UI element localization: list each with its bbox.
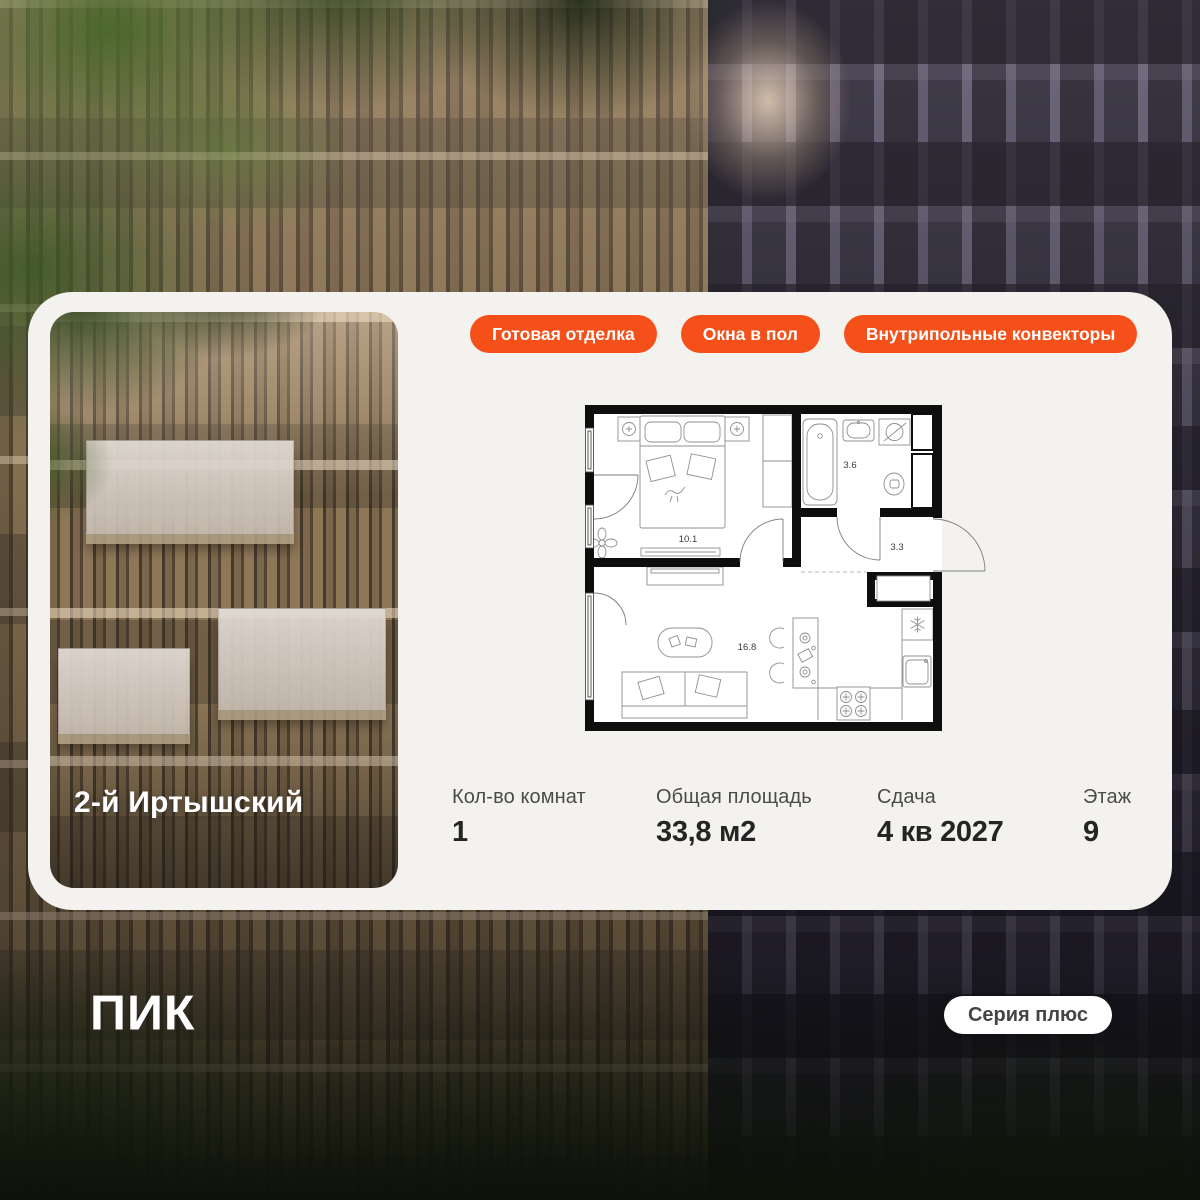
stat-value: 4 кв 2027 bbox=[877, 816, 1003, 849]
feature-badges: Готовая отделка Окна в пол Внутрипольные… bbox=[470, 315, 1137, 353]
series-badge: Серия плюс bbox=[944, 996, 1112, 1034]
room-area-living: 16.8 bbox=[738, 642, 757, 653]
badge-finishing: Готовая отделка bbox=[470, 315, 657, 353]
stat-label: Кол-во комнат bbox=[452, 786, 586, 809]
stat-floor: Этаж 9 bbox=[1083, 786, 1131, 849]
badge-windows: Окна в пол bbox=[681, 315, 820, 353]
listing-card[interactable]: 2-й Иртышский Готовая отделка Окна в пол… bbox=[28, 292, 1172, 910]
stat-value: 1 bbox=[452, 816, 586, 849]
stat-delivery: Сдача 4 кв 2027 bbox=[877, 786, 1003, 849]
stat-rooms: Кол-во комнат 1 bbox=[452, 786, 586, 849]
stat-label: Этаж bbox=[1083, 786, 1131, 809]
stat-area: Общая площадь 33,8 м2 bbox=[656, 786, 812, 849]
floorplan[interactable]: 10.1 3.6 3.3 16.8 bbox=[585, 398, 1000, 738]
pik-logo: ПИК bbox=[90, 985, 195, 1042]
stat-value: 9 bbox=[1083, 816, 1131, 849]
stat-label: Сдача bbox=[877, 786, 1003, 809]
project-name-label: 2-й Иртышский bbox=[74, 786, 303, 820]
stat-value: 33,8 м2 bbox=[656, 816, 812, 849]
room-area-hallway: 3.3 bbox=[890, 542, 903, 553]
project-photo[interactable]: 2-й Иртышский bbox=[50, 312, 398, 888]
badge-convectors: Внутрипольные конвекторы bbox=[844, 315, 1137, 353]
room-area-bathroom: 3.6 bbox=[843, 460, 856, 471]
room-area-bedroom: 10.1 bbox=[679, 534, 698, 545]
stat-label: Общая площадь bbox=[656, 786, 812, 809]
